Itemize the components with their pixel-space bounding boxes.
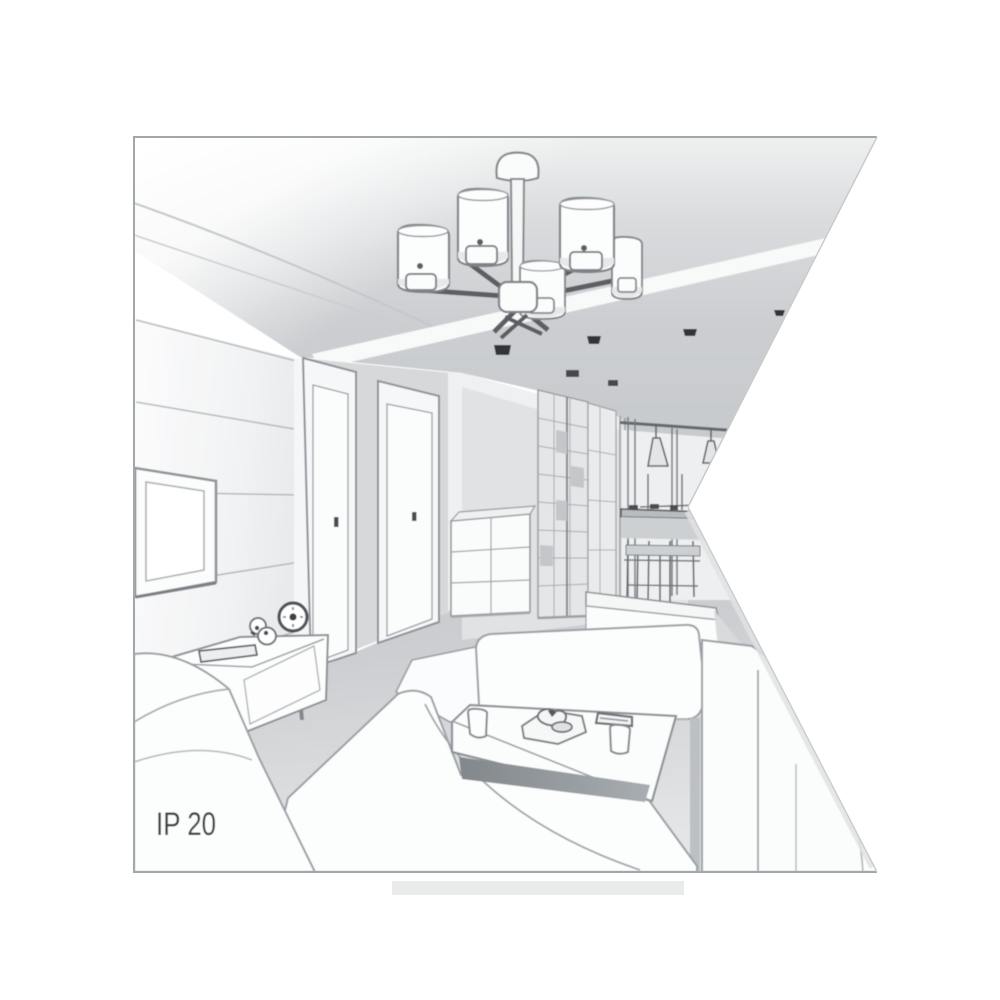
svg-text:IP 20: IP 20 bbox=[156, 806, 216, 842]
